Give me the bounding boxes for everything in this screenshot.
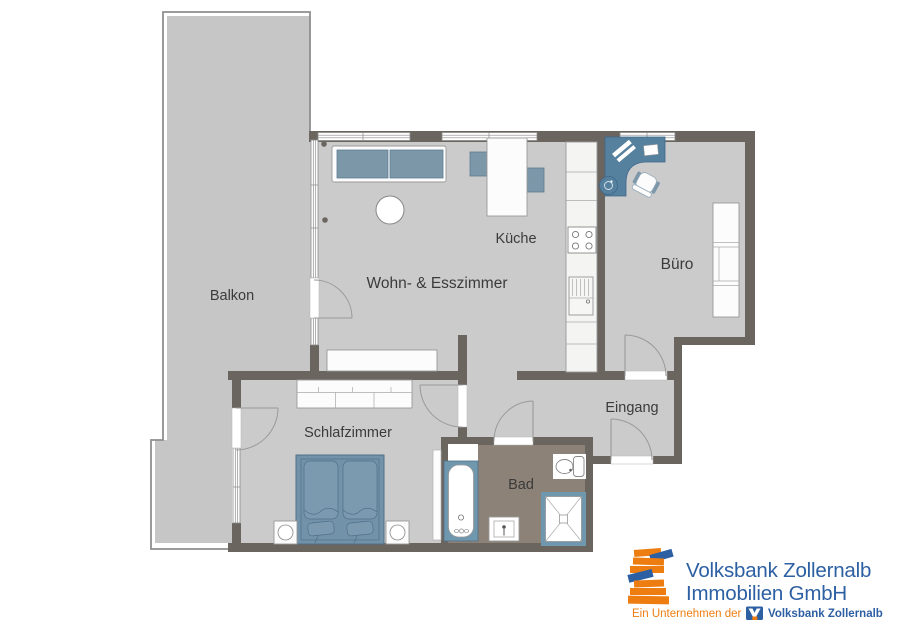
label-balkon: Balkon — [210, 288, 254, 304]
double-bed — [296, 455, 384, 544]
kitchen-furniture — [566, 142, 597, 372]
toilet — [553, 454, 586, 479]
window-top-living — [318, 133, 410, 141]
label-eingang: Eingang — [605, 400, 658, 416]
bathtub — [444, 461, 478, 541]
label-schlafzimmer: Schlafzimmer — [304, 425, 392, 441]
book-stack-icon — [627, 548, 673, 604]
window-living-balcony-small — [311, 318, 318, 345]
logo-tagline-prefix: Ein Unternehmen der — [632, 608, 741, 620]
sideboard — [327, 350, 437, 371]
kitchen-appliance — [569, 277, 593, 315]
nightstand-left — [274, 521, 297, 544]
logo-tagline-brand: Volksbank Zollernalb — [768, 608, 883, 620]
bedroom-cabinet-strip — [433, 450, 441, 540]
brand-logo: Volksbank Zollernalb Immobilien GmbH Ein… — [627, 548, 882, 620]
label-bad: Bad — [508, 477, 534, 493]
window-bedroom-balcony — [233, 448, 240, 523]
coffee-table — [376, 196, 404, 224]
wall-dot — [321, 141, 327, 147]
shower — [541, 492, 586, 546]
label-wohnzimmer: Wohn- & Esszimmer — [367, 275, 508, 292]
floorplan-drawing: Balkon Wohn- & Esszimmer Küche Büro Schl… — [0, 0, 900, 636]
logo-line2: Immobilien GmbH — [686, 582, 847, 605]
bedroom-wardrobe — [297, 380, 412, 408]
label-buero: Büro — [661, 256, 694, 273]
stove — [568, 227, 596, 253]
sofa — [332, 146, 446, 182]
nightstand-right — [386, 521, 409, 544]
side-table — [600, 177, 618, 195]
window-living-balcony — [311, 140, 318, 278]
bath-niche — [448, 444, 478, 462]
vr-emblem-icon — [746, 607, 763, 621]
desk-monitor — [644, 144, 659, 155]
kitchen-counter — [566, 142, 597, 372]
washbasin — [489, 517, 519, 541]
label-kueche: Küche — [495, 231, 536, 247]
logo-line1: Volksbank Zollernalb — [686, 559, 871, 582]
wall-dot — [322, 217, 328, 223]
office-wardrobe — [713, 203, 739, 317]
floorplan-page: Balkon Wohn- & Esszimmer Küche Büro Schl… — [0, 0, 900, 636]
